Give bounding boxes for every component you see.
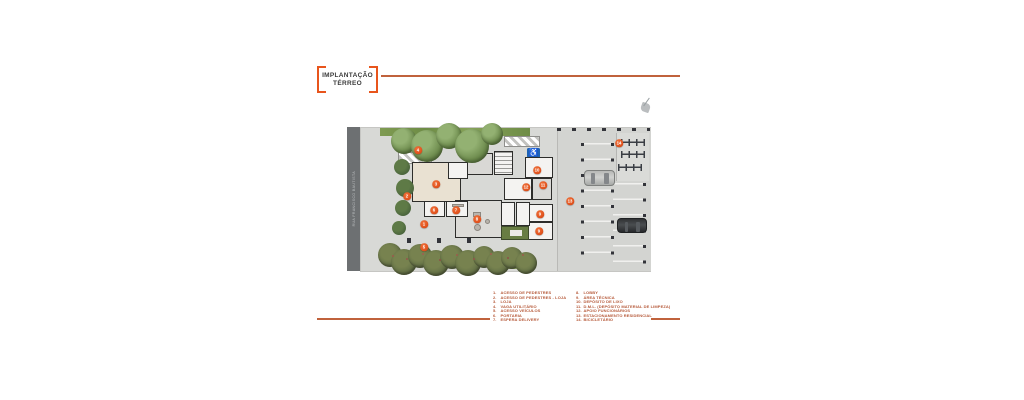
tree [481,123,503,145]
shrub [515,252,537,274]
marker-5: 5 [420,243,428,251]
garage-columns [611,143,614,265]
legend-item: 14.BICICLETÁRIO [576,318,670,323]
top-rule [381,75,680,77]
parking-stalls-left [583,143,613,265]
legend-label: BICICLETÁRIO [584,318,614,323]
marker-4: 4 [414,146,422,154]
title-bracket-left [317,66,326,93]
lobby-chair [485,219,490,224]
flower-dots [392,255,394,257]
bike-rack-icon [621,139,645,146]
ramp-hatch [504,136,540,147]
column-post [467,238,471,243]
marker-9: 9 [536,210,544,218]
north-arrow-icon [637,99,653,115]
page-title-line2: TÉRREO [322,80,373,88]
bike-rack-icon [621,151,645,158]
wheelchair-icon: ♿ [529,149,539,157]
column-post [407,238,411,243]
legend-label: ESPERA DELIVERY [501,318,540,323]
column-post [437,238,441,243]
marker-3: 3 [432,180,440,188]
marker-9b: 9 [535,227,543,235]
bottom-rule-left [317,318,490,320]
car-icon [617,218,647,233]
legend-column-1: 1.ACESSO DE PEDESTRES 2.ACESSO DE PEDEST… [493,291,566,323]
marker-7: 7 [452,206,460,214]
page-title-line1: IMPLANTAÇÃO [322,72,373,80]
title-bracket-right [369,66,378,93]
marker-1: 1 [420,220,428,228]
planter-bench [510,230,522,236]
bush [394,159,410,175]
legend-item: 7.ESPERA DELIVERY [493,318,566,323]
legend-number: 14. [576,318,584,323]
marker-11: 11 [539,181,547,189]
garage-columns [581,143,584,265]
street-label: RUA FRANCISCO BAUTISTA [352,171,356,226]
bike-rack-icon [618,164,642,171]
marker-6: 6 [430,206,438,214]
lobby-table [474,224,481,231]
street-strip: RUA FRANCISCO BAUTISTA [347,127,361,271]
marker-12: 12 [522,183,530,191]
room-restroom [448,162,468,179]
bush [392,221,406,235]
marker-2: 2 [403,192,411,200]
bush [395,200,411,216]
car-icon [584,170,615,186]
title-box: IMPLANTAÇÃO TÉRREO [317,66,378,93]
floorplan-page: IMPLANTAÇÃO TÉRREO RUA FRANCISCO BAUTIST… [0,0,1024,400]
legend-number: 7. [493,318,501,323]
marker-13: 13 [566,197,574,205]
lounge-bed [516,202,530,226]
room-stairs [494,151,513,175]
legend-column-2: 8.LOBBY 9.ÁREA TÉCNICA 10.DEPÓSITO DE LI… [576,291,670,323]
page-title: IMPLANTAÇÃO TÉRREO [322,72,373,87]
lounge-bed [501,202,515,226]
marker-8: 8 [473,215,481,223]
garage-columns-top [557,128,650,131]
marker-10: 10 [533,166,541,174]
marker-14: 14 [615,139,623,147]
